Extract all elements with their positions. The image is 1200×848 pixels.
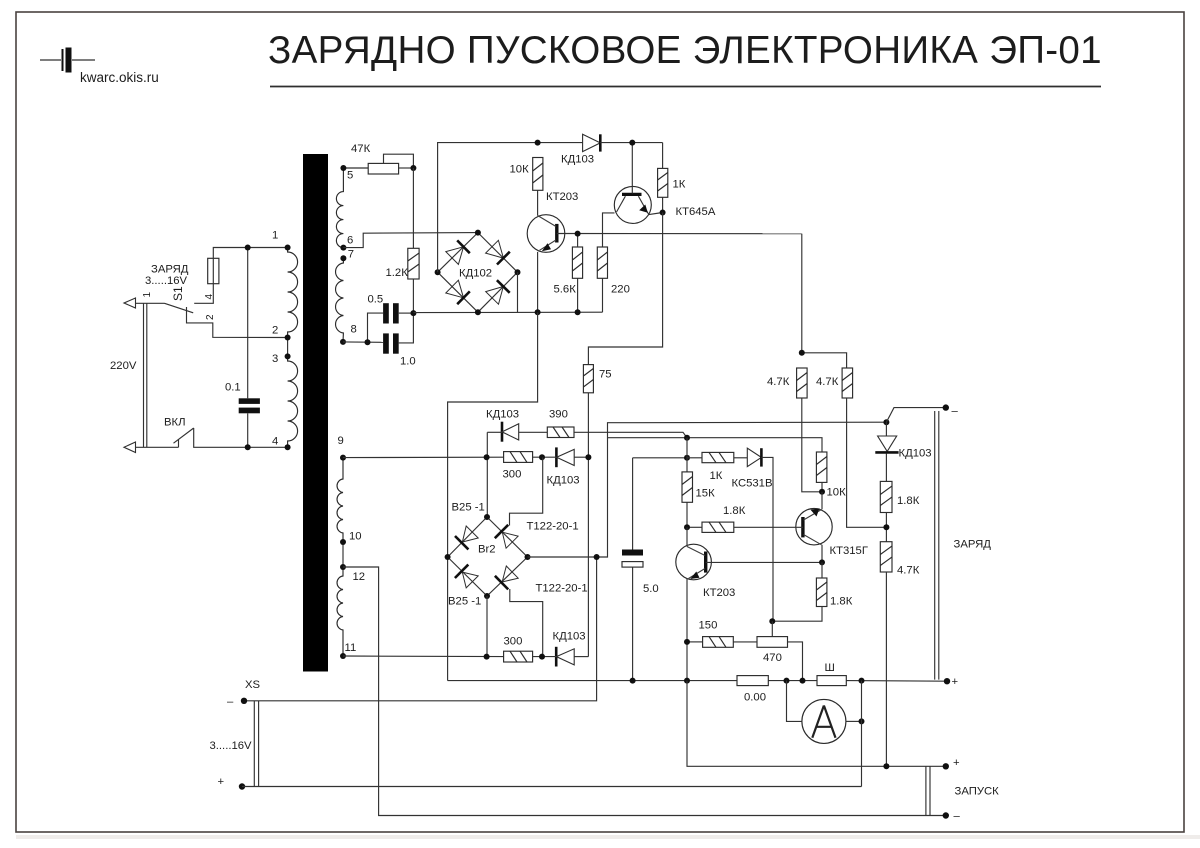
svg-text:В25 -1: В25 -1 [448,596,481,608]
svg-text:КТ645А: КТ645А [676,206,716,218]
svg-text:1.2К: 1.2К [386,267,409,279]
svg-text:5.6К: 5.6К [554,284,577,296]
svg-text:ЗАРЯД: ЗАРЯД [151,264,189,276]
svg-text:10К: 10К [510,164,530,176]
svg-text:5: 5 [347,169,353,181]
svg-text:0.00: 0.00 [744,692,766,704]
svg-text:1.0: 1.0 [400,356,416,368]
svg-text:8: 8 [351,323,357,335]
svg-text:10: 10 [349,531,362,543]
svg-text:+: + [952,676,959,688]
svg-text:Br2: Br2 [478,544,496,556]
svg-text:11: 11 [345,642,357,654]
svg-text:75: 75 [599,369,612,381]
svg-text:КТ203: КТ203 [546,191,578,203]
svg-text:4.7К: 4.7К [816,376,839,388]
svg-text:КД103: КД103 [899,448,932,460]
svg-text:220V: 220V [110,360,137,372]
svg-text:10К: 10К [827,487,847,499]
svg-text:ЗАПУСК: ЗАПУСК [955,786,1000,798]
svg-text:Т122-20-1: Т122-20-1 [527,521,579,533]
svg-text:220: 220 [611,284,630,296]
svg-text:КС531В: КС531В [732,478,773,490]
svg-text:Т122-20-1: Т122-20-1 [536,583,588,595]
svg-text:2: 2 [205,314,216,320]
svg-text:КД103: КД103 [486,409,519,421]
svg-text:–: – [227,696,234,708]
svg-text:300: 300 [504,636,523,648]
svg-text:КД103: КД103 [553,631,586,643]
svg-text:1К: 1К [673,179,686,191]
svg-text:1: 1 [142,292,153,298]
svg-text:300: 300 [503,469,522,481]
svg-text:4: 4 [272,436,278,448]
svg-text:ЗАРЯД: ЗАРЯД [954,539,992,551]
svg-text:ЗАРЯДНО ПУСКОВОЕ ЭЛЕКТРОНИКА Э: ЗАРЯДНО ПУСКОВОЕ ЭЛЕКТРОНИКА ЭП-01 [268,29,1102,72]
svg-text:S1: S1 [171,286,185,301]
svg-text:5.0: 5.0 [643,583,659,595]
svg-text:3.....16V: 3.....16V [145,275,188,287]
svg-text:1.8К: 1.8К [830,596,853,608]
svg-text:+: + [953,757,960,769]
svg-text:XS: XS [245,679,261,691]
svg-text:КД102: КД102 [459,268,492,280]
svg-text:1.8К: 1.8К [897,495,920,507]
svg-text:6: 6 [347,234,353,246]
svg-text:2: 2 [272,325,278,337]
svg-text:12: 12 [353,571,366,583]
svg-text:1: 1 [272,230,278,242]
svg-text:150: 150 [699,620,718,632]
svg-text:1.8К: 1.8К [723,505,746,517]
svg-text:ВКЛ: ВКЛ [164,417,186,429]
svg-text:+: + [218,776,225,788]
svg-text:7: 7 [348,249,354,261]
svg-text:0.5: 0.5 [368,294,384,306]
svg-text:–: – [954,811,961,823]
svg-text:4.7К: 4.7К [767,376,790,388]
svg-text:КД103: КД103 [561,154,594,166]
svg-text:КТ315Г: КТ315Г [830,545,868,557]
svg-text:В25 -1: В25 -1 [452,502,485,514]
svg-text:kwarc.okis.ru: kwarc.okis.ru [80,70,159,85]
svg-text:1К: 1К [710,470,723,482]
svg-text:15К: 15К [696,488,716,500]
svg-text:4.7К: 4.7К [897,565,920,577]
svg-text:0.1: 0.1 [225,382,241,394]
svg-text:–: – [952,406,959,418]
svg-text:КТ203: КТ203 [703,587,735,599]
svg-text:3: 3 [272,353,278,365]
svg-text:390: 390 [549,409,568,421]
svg-text:470: 470 [763,652,782,664]
svg-text:47К: 47К [351,143,371,155]
svg-text:КД103: КД103 [547,475,580,487]
svg-text:9: 9 [338,435,344,447]
svg-text:3.....16V: 3.....16V [210,740,253,752]
svg-text:Ш: Ш [825,662,835,674]
